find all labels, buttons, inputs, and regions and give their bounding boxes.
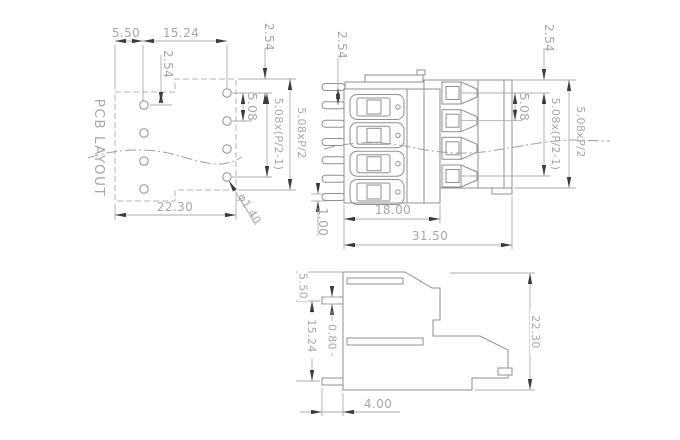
dim-total-width: 31.50 [344, 196, 512, 249]
dim-stagger-left: 2.54 [150, 50, 175, 105]
connector-side-view: 5.50 15.24 0.80 [296, 271, 542, 416]
pcb-layout-label: PCB LAYOUT [91, 99, 107, 197]
dim-label: 31.50 [412, 229, 448, 243]
dim-label: 22.30 [529, 315, 542, 349]
drawing-canvas: PCB LAYOUT 5.50 15.24 [0, 0, 680, 440]
dim-label: 15.24 [163, 26, 199, 40]
dim-hole-diameter: φ1.40 [229, 181, 264, 227]
engineering-drawing: PCB LAYOUT 5.50 15.24 [0, 0, 680, 440]
dim-label: 2.54 [161, 50, 175, 78]
dim-label: 5.08x(P/2-1) [549, 98, 562, 171]
dim-top-offset: 2.54 [542, 24, 556, 100]
dim-label: 2.54 [542, 24, 556, 52]
dim-label: 18.00 [375, 203, 411, 217]
dim-span-total-front: 5.08xP/2 [569, 80, 587, 188]
dim-label: 5.08xP/2 [574, 106, 587, 158]
pcb-outline [115, 79, 236, 201]
pcb-layout-view: PCB LAYOUT 5.50 15.24 [88, 23, 308, 227]
dim-pin-length: 4.00 [300, 388, 400, 416]
dim-board-width: 22.30 [115, 193, 236, 220]
dim-span-total: 5.08xP/2 [290, 79, 308, 190]
dim-label: 5.08 [245, 93, 259, 121]
dim-span-poles: 5.08x(P/2-1) [544, 93, 562, 176]
dim-label: 2.54 [262, 23, 276, 51]
side-pin-top [322, 297, 343, 304]
dim-stagger-right: 2.54 [262, 23, 276, 100]
dim-span-holes: 5.08x(P/2-1) [267, 93, 285, 177]
dim-label: φ1.40 [235, 191, 264, 227]
dim-hole-pitch: 5.08 [243, 93, 259, 121]
pcb-layout-title: PCB LAYOUT [91, 99, 107, 197]
dim-edge-to-hole: 5.50 [112, 26, 143, 101]
dim-label: 5.08 [517, 93, 531, 121]
dim-pin-spacing: 15.24 [296, 301, 320, 381]
dim-pole-pitch: 5.08 [515, 93, 531, 121]
dim-label: 5.50 [297, 273, 310, 299]
dim-label: 4.00 [364, 397, 392, 411]
dim-label: 2.54 [335, 31, 349, 59]
front-pins [322, 84, 345, 201]
dim-label: 1.00 [316, 208, 330, 236]
dim-label: 22.30 [157, 200, 193, 214]
side-pin-bottom [322, 378, 343, 385]
dim-label: 15.24 [305, 319, 318, 353]
dim-label: 5.50 [112, 26, 140, 40]
dim-label: 0.80 [326, 324, 339, 350]
connector-front-view: 2.54 2.54 5.08 5.08x [311, 24, 610, 249]
pcb-holes [140, 89, 231, 193]
side-latch [498, 368, 512, 375]
dim-label: 5.08x(P/2-1) [272, 98, 285, 171]
dim-label: 5.08xP/2 [295, 107, 308, 159]
pcb-break-line [88, 150, 242, 164]
side-body-outline [343, 272, 508, 390]
